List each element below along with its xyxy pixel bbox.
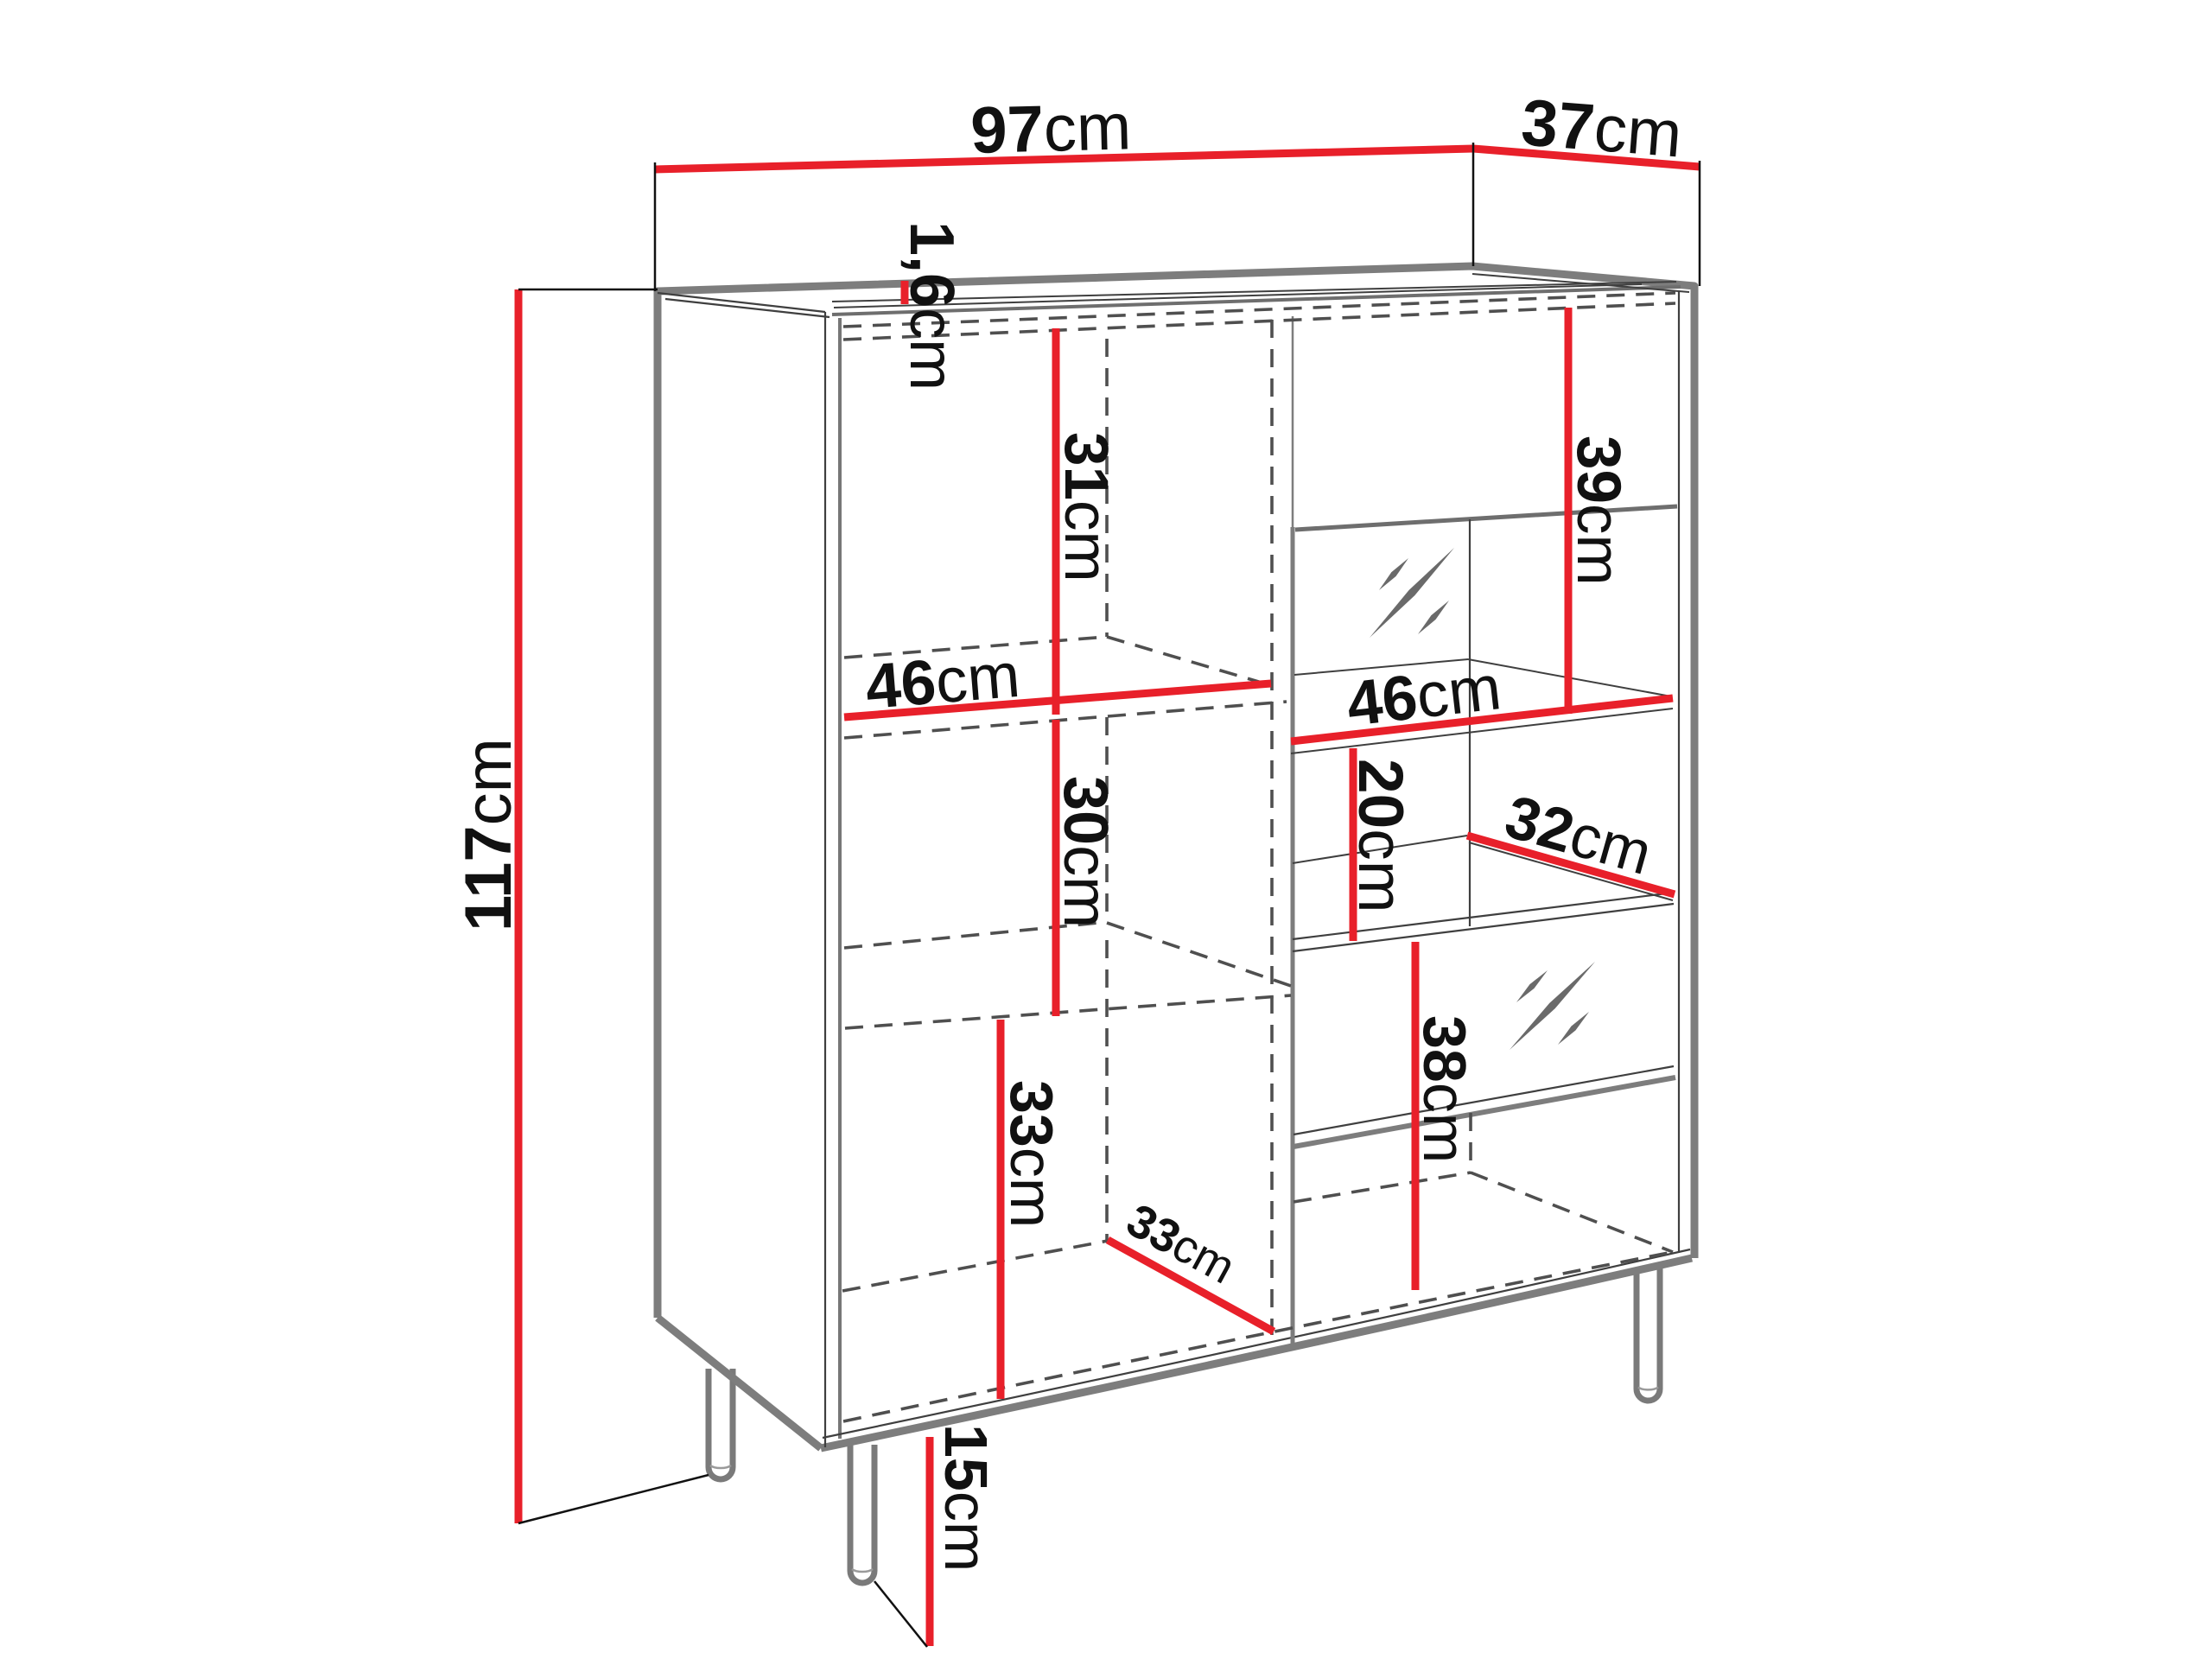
svg-text:37cm: 37cm (1519, 86, 1685, 171)
svg-text:38cm: 38cm (1411, 1015, 1478, 1163)
svg-text:97cm: 97cm (969, 90, 1132, 168)
svg-text:39cm: 39cm (1564, 435, 1632, 586)
svg-text:33cm: 33cm (998, 1080, 1065, 1228)
svg-text:1,6cm: 1,6cm (897, 221, 966, 391)
svg-text:117cm: 117cm (452, 738, 525, 931)
svg-text:20cm: 20cm (1345, 759, 1415, 913)
svg-text:15cm: 15cm (932, 1424, 1000, 1572)
svg-text:31cm: 31cm (1052, 432, 1120, 582)
svg-text:46cm: 46cm (863, 640, 1022, 722)
svg-text:30cm: 30cm (1051, 776, 1120, 928)
